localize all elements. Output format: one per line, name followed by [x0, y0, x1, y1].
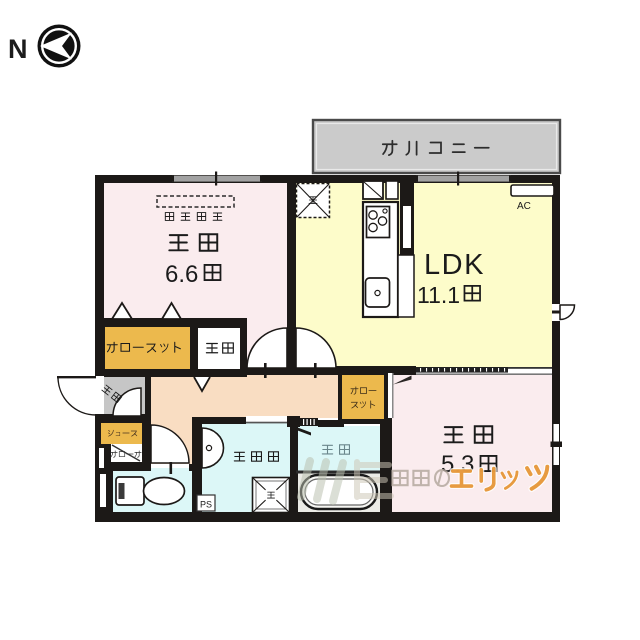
svg-text:AC: AC: [517, 201, 531, 212]
svg-text:LDK: LDK: [424, 249, 485, 281]
svg-text:6.6: 6.6: [165, 261, 198, 288]
svg-text:11.1: 11.1: [417, 282, 460, 308]
svg-text:N: N: [8, 34, 28, 64]
svg-text:PS: PS: [200, 500, 212, 510]
